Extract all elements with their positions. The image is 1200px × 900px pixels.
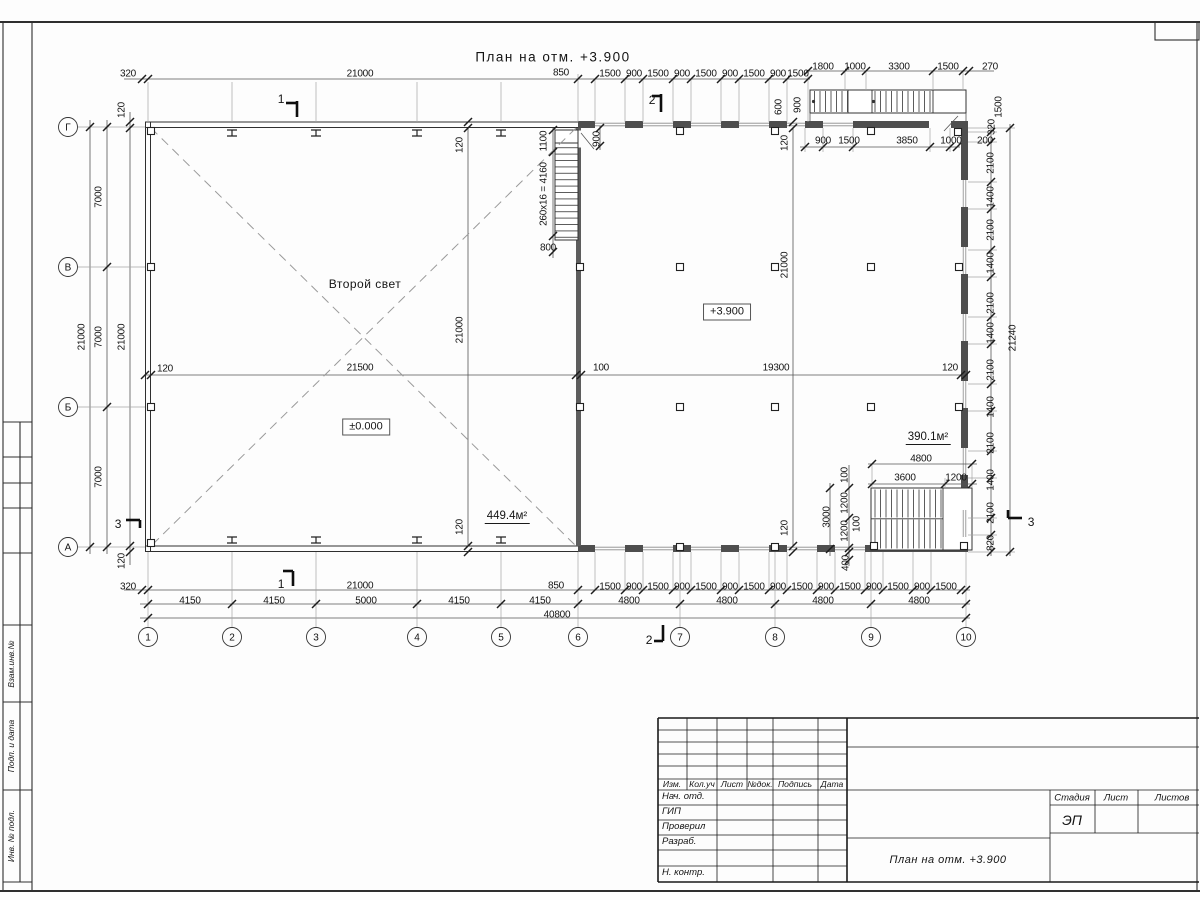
window-opening [595, 121, 625, 129]
window-opening [823, 121, 853, 129]
dim-label: 7000 [94, 326, 105, 347]
dim-label: 21000 [347, 581, 374, 592]
tb-row-nach-otd: Нач. отд. [662, 791, 705, 802]
axis-label: 4 [414, 633, 420, 644]
dim-label: 800 [540, 243, 556, 254]
window-opening [691, 545, 721, 553]
tb-row-razrab: Разраб. [662, 836, 696, 847]
dim-label: 120 [780, 520, 791, 536]
axis-label: В [65, 263, 72, 274]
second-light-label: Второй свет [329, 277, 402, 291]
dim-label: 900 [592, 131, 603, 147]
column-square [868, 128, 875, 135]
dim-label: 2 [646, 633, 652, 647]
column-square [868, 404, 875, 411]
axis-label: Б [65, 403, 72, 414]
dim-label: 120 [117, 553, 128, 569]
tb-sheets-label: Листов [1155, 793, 1190, 804]
column-square [148, 540, 155, 547]
tb-row-gip: ГИП [662, 806, 681, 817]
dim-label: 1500 [791, 582, 812, 593]
dim-label: 820 [986, 535, 997, 551]
dim-label: 1500 [839, 582, 860, 593]
i-column [412, 537, 422, 543]
dim-label: 3300 [888, 62, 909, 73]
tb-sheet-label: Лист [1104, 793, 1128, 804]
dim-label: 4800 [910, 454, 931, 465]
dim-label: 21000 [780, 252, 791, 279]
dim-label: 4150 [179, 596, 200, 607]
dim-label: 900 [722, 69, 738, 80]
dim-label: 1500 [935, 582, 956, 593]
dim-label: 260x16 = 4160 [539, 162, 550, 226]
dim-label: 900 [793, 97, 804, 113]
dim-label: 1500 [743, 582, 764, 593]
dim-label: 120 [780, 135, 791, 151]
stamp-cell-inv: Инв. № подл. [6, 810, 16, 862]
column-square [677, 544, 684, 551]
dim-label: 200 [977, 136, 993, 147]
dim-label: 2100 [986, 502, 997, 523]
column-square [956, 404, 963, 411]
dim-label: 900 [722, 582, 738, 593]
dim-label: 900 [674, 69, 690, 80]
axis-label: 9 [868, 633, 874, 644]
dim-label: 1400 [986, 396, 997, 417]
column-square [871, 543, 878, 550]
axis-label: 3 [313, 633, 319, 644]
i-column [227, 537, 237, 543]
dim-label: 1500 [838, 136, 859, 147]
dim-label: 1400 [986, 252, 997, 273]
window-opening [595, 545, 625, 553]
dim-label: 1800 [812, 62, 833, 73]
dim-label: 7000 [94, 466, 105, 487]
dim-label: 2100 [986, 359, 997, 380]
dim-label: 4800 [618, 596, 639, 607]
i-column [311, 130, 321, 136]
plan-title: План на отм. +3.900 [475, 50, 630, 65]
column-square [772, 128, 779, 135]
tb-col-data: Дата [821, 779, 844, 789]
tb-col-ndok: №док. [747, 779, 772, 789]
column-square [677, 128, 684, 135]
dim-label: 1000 [940, 136, 961, 147]
dim-label: 19300 [763, 363, 790, 374]
dim-label: 900 [866, 582, 882, 593]
dim-label: 1400 [986, 186, 997, 207]
column-square [148, 404, 155, 411]
dim-label: 1200 [840, 492, 851, 513]
column-square [577, 264, 584, 271]
dim-label: 3600 [894, 473, 915, 484]
axis-label: 6 [575, 633, 581, 644]
dim-label: 120 [455, 137, 466, 153]
dim-label: 120 [117, 102, 128, 118]
dim-label: 1500 [647, 69, 668, 80]
dim-label: 270 [982, 62, 998, 73]
axis-label: 7 [677, 633, 683, 644]
dim-label: 1500 [695, 582, 716, 593]
dim-label: 21000 [347, 69, 374, 80]
column-square [868, 264, 875, 271]
dim-label: 120 [942, 363, 958, 374]
dim-label: 900 [914, 582, 930, 593]
i-column [496, 537, 506, 543]
dim-label: 3 [1028, 515, 1034, 529]
window-opening [691, 121, 721, 129]
dim-label: 3000 [822, 506, 833, 527]
column-square [148, 128, 155, 135]
dim-label: 21000 [455, 317, 466, 344]
column-square [772, 264, 779, 271]
dim-label: 1500 [787, 69, 808, 80]
tb-col-koluch: Кол.уч [689, 779, 715, 789]
dim-label: 1500 [695, 69, 716, 80]
dim-label: 1500 [937, 62, 958, 73]
dim-label: 850 [553, 68, 569, 79]
dim-label: 4150 [263, 596, 284, 607]
tb-stage-label: Стадия [1054, 793, 1090, 804]
drawing-sheet: 12345678910ГВБА 320210008501500900150090… [0, 0, 1200, 900]
dim-label: 4150 [448, 596, 469, 607]
window-opening [787, 545, 817, 553]
window-opening [961, 180, 968, 207]
dim-label: 21240 [1008, 325, 1019, 352]
window-opening [961, 314, 968, 341]
stamp-cell-podp: Подп. и дата [6, 720, 16, 772]
i-column [227, 130, 237, 136]
dim-label: 2 [649, 93, 655, 107]
dim-label: 900 [815, 136, 831, 147]
dim-label: 100 [840, 467, 851, 483]
window-opening [961, 510, 968, 537]
i-column [412, 130, 422, 136]
window-opening [961, 448, 968, 475]
dim-label: 1200 [945, 473, 966, 484]
dim-label: 21500 [347, 363, 374, 374]
dim-label: 320 [987, 119, 998, 135]
column-square [772, 544, 779, 551]
dim-label: 320 [120, 582, 136, 593]
column-square [772, 404, 779, 411]
dim-label: 1 [278, 92, 284, 106]
dim-label: 900 [626, 69, 642, 80]
dim-label: 1400 [986, 322, 997, 343]
level-mark-right: +3.900 [703, 304, 751, 321]
dim-label: 1500 [994, 96, 1005, 117]
dim-label: 120 [455, 519, 466, 535]
dim-label: 100 [593, 363, 609, 374]
dim-label: 4800 [716, 596, 737, 607]
column-square [677, 404, 684, 411]
dim-label: 320 [120, 69, 136, 80]
dim-label: 900 [770, 69, 786, 80]
tb-col-podpis: Подпись [778, 779, 812, 789]
dim-label: 1500 [743, 69, 764, 80]
column-square [148, 264, 155, 271]
window-opening [643, 545, 673, 553]
axis-label: 8 [772, 633, 778, 644]
column-square [961, 543, 968, 550]
dim-label: 900 [674, 582, 690, 593]
dim-label: 900 [770, 582, 786, 593]
dim-label: 2100 [986, 219, 997, 240]
dim-label: 21000 [77, 324, 88, 351]
window-opening [643, 121, 673, 129]
dim-label: 2100 [986, 292, 997, 313]
tb-row-nkontr: Н. контр. [662, 867, 705, 878]
column-square [577, 404, 584, 411]
axis-label: Г [65, 123, 71, 134]
dim-label: 1400 [986, 469, 997, 490]
dim-label: 1100 [539, 131, 550, 152]
dim-label: 7000 [94, 186, 105, 207]
dim-label: 1000 [844, 62, 865, 73]
column-square [955, 129, 962, 136]
dim-label: 1500 [599, 69, 620, 80]
axis-label: 2 [229, 633, 235, 644]
dim-label: 2100 [986, 432, 997, 453]
tb-col-izm: Изм. [663, 779, 681, 789]
dim-label: 4800 [908, 596, 929, 607]
tb-stage-value: ЭП [1062, 812, 1082, 828]
window-opening [739, 121, 769, 129]
column-square [677, 264, 684, 271]
dim-label: 1500 [599, 582, 620, 593]
dim-label: 1 [278, 577, 284, 591]
stamp-cell-vzam: Взам.инв.№ [6, 640, 16, 687]
dim-label: 120 [157, 364, 173, 375]
dim-label: 1500 [647, 582, 668, 593]
dim-label: 400 [841, 555, 852, 571]
dim-label: 900 [626, 582, 642, 593]
dim-label: 3850 [896, 136, 917, 147]
dim-label: 3 [115, 517, 121, 531]
dim-label: 4150 [529, 596, 550, 607]
tb-col-list: Лист [721, 779, 743, 789]
dim-label: 100 [852, 516, 863, 532]
axis-label: 10 [960, 633, 972, 644]
column-square [956, 264, 963, 271]
axis-label: 1 [145, 633, 151, 644]
level-mark-left: ±0.000 [342, 419, 390, 436]
area-label-left: 449.4м² [485, 510, 530, 524]
dim-label: 900 [818, 582, 834, 593]
tb-doc-name: План на отм. +3.900 [890, 854, 1007, 866]
dim-label: 5000 [355, 596, 376, 607]
dim-label: 850 [548, 581, 564, 592]
area-label-right: 390.1м² [906, 431, 951, 445]
dim-label: 40800 [544, 610, 571, 621]
dim-label: 21000 [117, 324, 128, 351]
dim-label: 2100 [986, 152, 997, 173]
tb-row-proveril: Проверил [662, 821, 705, 832]
dim-label: 600 [774, 99, 785, 115]
i-column [311, 537, 321, 543]
window-opening [739, 545, 769, 553]
dim-label: 4800 [812, 596, 833, 607]
dim-label: 1500 [887, 582, 908, 593]
dim-label: 1200 [840, 520, 851, 541]
i-column [496, 130, 506, 136]
axis-label: 5 [498, 633, 504, 644]
axis-label: А [65, 543, 72, 554]
